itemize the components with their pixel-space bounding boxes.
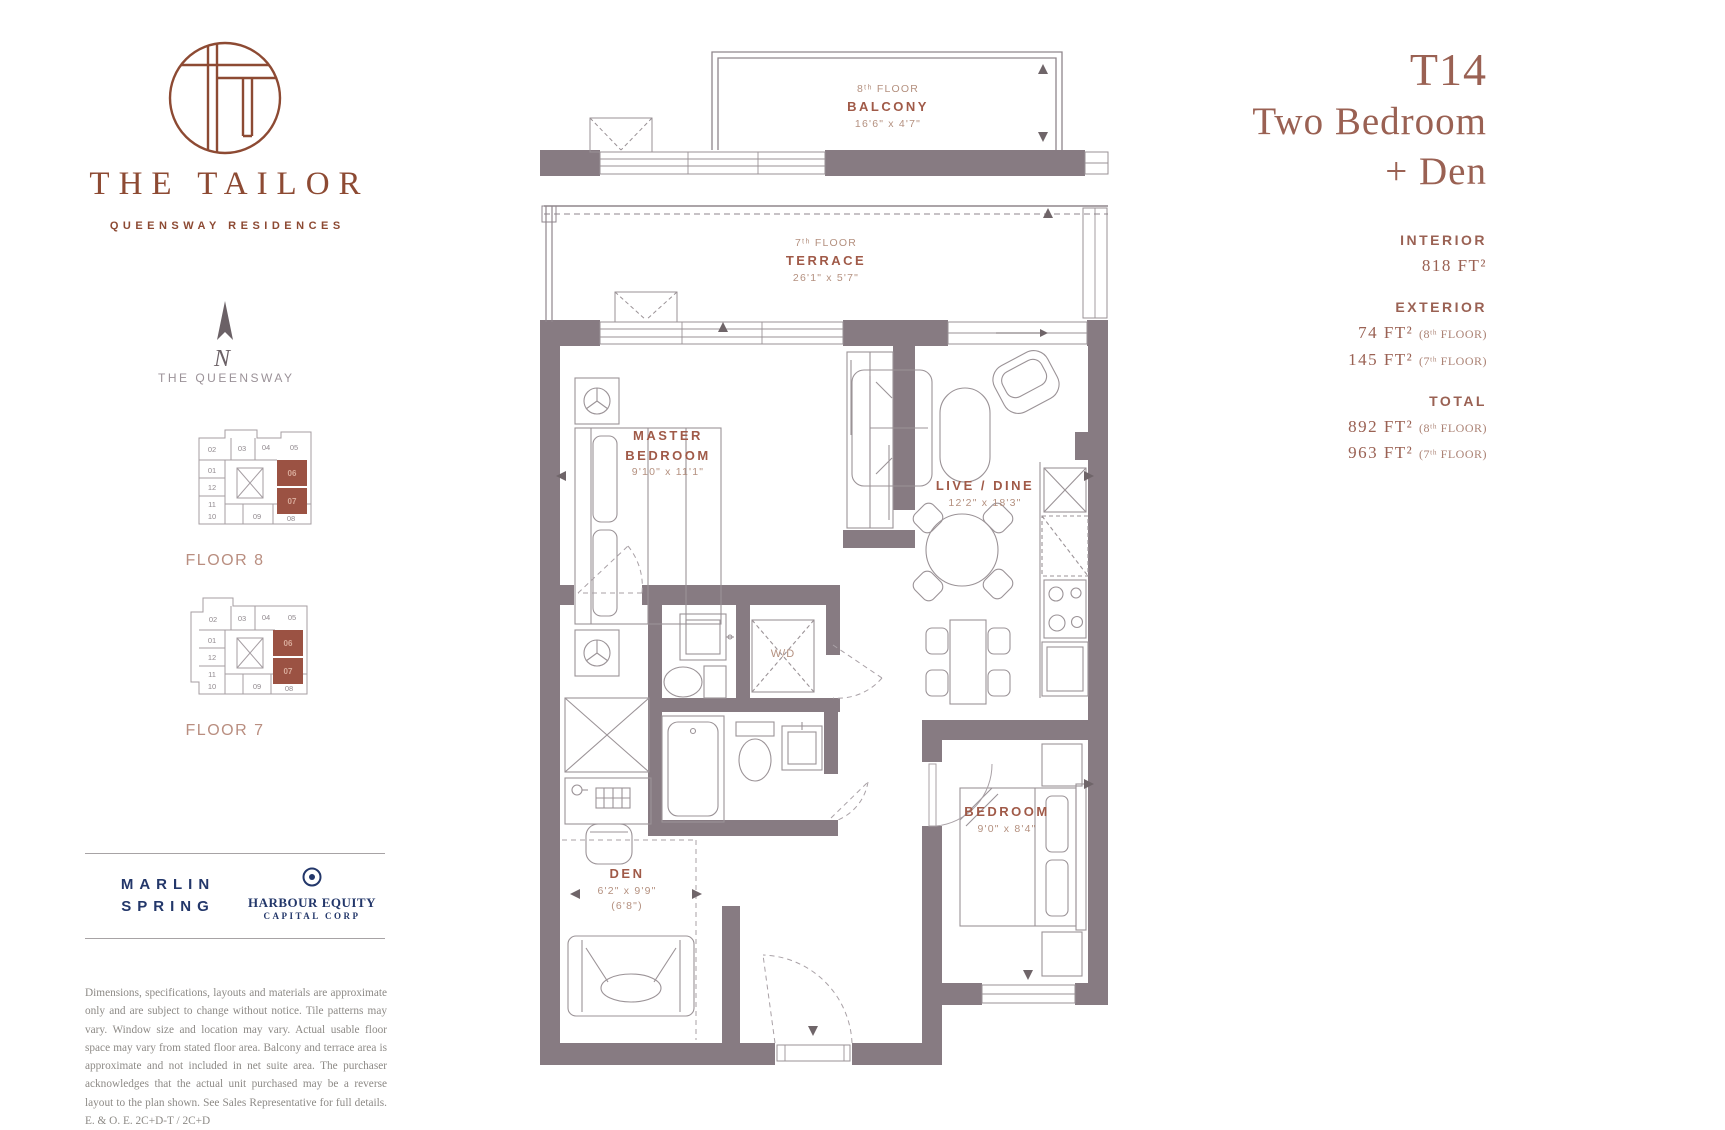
exterior-value-2: 145 FT²	[1348, 350, 1413, 369]
unit-stats: INTERIOR 818 FT² EXTERIOR 74 FT² (8ᵗʰ FL…	[1127, 232, 1487, 467]
total-row-1: 892 FT² (8ᵗʰ FLOOR)	[1127, 414, 1487, 440]
brand-logo	[159, 34, 291, 166]
floor-plan-drawing	[530, 30, 1130, 1100]
brand-tagline: QUEENSWAY RESIDENCES	[70, 220, 380, 232]
total-note-1: (8ᵗʰ FLOOR)	[1419, 421, 1487, 435]
marlin-spring-logo: MARLIN SPRING	[100, 874, 230, 918]
keyplan7-unit: 08	[285, 684, 293, 693]
windows	[600, 152, 1108, 1061]
disclaimer-text: Dimensions, specifications, layouts and …	[85, 984, 387, 1130]
keyplan7-unit07: 07	[284, 667, 293, 676]
tailor-monogram-icon	[159, 34, 291, 166]
keyplan8-unit: 01	[208, 466, 216, 475]
terrace-dims: 26'1" x 5'7"	[786, 271, 866, 286]
live-dine-dims: 12'2" x 18'3"	[936, 496, 1034, 511]
unit-type-line2: + Den	[1127, 147, 1487, 197]
north-arrow-icon	[217, 301, 233, 340]
keyplan8-unit07: 07	[288, 497, 297, 506]
balcony-label: 8ᵗʰ FLOOR BALCONY 16'6" x 4'7"	[847, 82, 929, 132]
keyplan7-unit: 11	[208, 670, 216, 679]
terrace-label: 7ᵗʰ FLOOR TERRACE 26'1" x 5'7"	[786, 236, 866, 286]
live-dine-name: LIVE / DINE	[936, 476, 1034, 496]
den-name: DEN	[597, 864, 656, 884]
master-bedroom-label: MASTER BEDROOM 9'10" x 11'1"	[608, 426, 728, 480]
keyplan7-unit: 10	[208, 682, 216, 691]
bedroom-name: BEDROOM	[964, 802, 1049, 822]
keyplan7-unit: 01	[208, 636, 216, 645]
marlin-line2: SPRING	[100, 896, 230, 918]
marlin-line1: MARLIN	[100, 874, 230, 896]
balcony-dims: 16'6" x 4'7"	[847, 117, 929, 132]
walls	[540, 150, 1108, 1065]
keyplan8-unit: 08	[287, 514, 295, 523]
balcony-floor: 8ᵗʰ FLOOR	[847, 82, 929, 97]
keyplan7-unit: 03	[238, 614, 246, 623]
keyplan-floor8: 06 07 02 03 04 05 01 12 11 10 09 08	[185, 416, 325, 553]
terrace-floor: 7ᵗʰ FLOOR	[786, 236, 866, 251]
keyplan8-unit: 02	[208, 445, 216, 454]
wd-label: W/D	[771, 648, 795, 660]
keyplan8-unit: 10	[208, 512, 216, 521]
exterior-row-1: 74 FT² (8ᵗʰ FLOOR)	[1127, 320, 1487, 346]
unit-code: T14	[1127, 44, 1487, 97]
balcony-name: BALCONY	[847, 97, 929, 117]
keyplan7-unit: 05	[288, 613, 296, 622]
keyplan8-unit: 09	[253, 512, 261, 521]
den-label: DEN 6'2" x 9'9" (6'8")	[597, 864, 656, 914]
keyplan8-unit: 11	[208, 500, 216, 509]
window-mullions	[600, 152, 1108, 1061]
divider-bottom	[85, 938, 385, 939]
total-value-1: 892 FT²	[1348, 417, 1413, 436]
floor8-label: FLOOR 8	[70, 552, 380, 570]
divider-top	[85, 853, 385, 854]
exterior-row-2: 145 FT² (7ᵗʰ FLOOR)	[1127, 347, 1487, 373]
terrace-name: TERRACE	[786, 251, 866, 271]
den-dims2: (6'8")	[597, 899, 656, 914]
bedroom-label: BEDROOM 9'0" x 8'4"	[964, 802, 1049, 837]
exterior-note-1: (8ᵗʰ FLOOR)	[1419, 327, 1487, 341]
keyplan-floor7: 06 07 02 03 04 05 01 12 11 10 09 08	[183, 582, 328, 725]
floor-plan: 8ᵗʰ FLOOR BALCONY 16'6" x 4'7" 7ᵗʰ FLOOR…	[530, 30, 1130, 1100]
interior-label: INTERIOR	[1127, 232, 1487, 248]
bedroom-dims: 9'0" x 8'4"	[964, 822, 1049, 837]
total-value-2: 963 FT²	[1348, 443, 1413, 462]
compass-n: N	[213, 346, 232, 372]
live-dine-label: LIVE / DINE 12'2" x 18'3"	[936, 476, 1034, 511]
keyplan7-unit: 04	[262, 613, 270, 622]
keyplan8-unit: 05	[290, 443, 298, 452]
interior-value: 818 FT²	[1127, 253, 1487, 279]
exterior-value-1: 74 FT²	[1358, 323, 1413, 342]
street-label: THE QUEENSWAY	[70, 371, 380, 385]
floor7-label: FLOOR 7	[70, 722, 380, 740]
harbour-equity-logo: HARBOUR EQUITY CAPITAL CORP	[244, 866, 380, 921]
total-label: TOTAL	[1127, 393, 1487, 409]
keyplan8-unit06: 06	[288, 469, 297, 478]
master-dims: 9'10" x 11'1"	[608, 465, 728, 480]
exterior-label: EXTERIOR	[1127, 299, 1487, 315]
unit-type-line1: Two Bedroom	[1127, 97, 1487, 147]
keyplan7-unit: 02	[209, 615, 217, 624]
harbour-line1: HARBOUR EQUITY	[244, 895, 380, 911]
harbour-line2: CAPITAL CORP	[244, 911, 380, 921]
keyplan7-unit: 12	[208, 653, 216, 662]
keyplan7-unit06: 06	[284, 639, 293, 648]
exterior-note-2: (7ᵗʰ FLOOR)	[1419, 354, 1487, 368]
keyplan8-unit: 12	[208, 483, 216, 492]
north-compass: N	[197, 298, 253, 374]
brand-title: THE TAILOR	[70, 166, 380, 203]
den-dims: 6'2" x 9'9"	[597, 884, 656, 899]
keyplan8-unit: 04	[262, 443, 270, 452]
total-row-2: 963 FT² (7ᵗʰ FLOOR)	[1127, 440, 1487, 466]
master-name-text: MASTER BEDROOM	[625, 428, 710, 463]
harbour-badge-icon	[301, 866, 323, 888]
keyplan7-unit: 09	[253, 682, 261, 691]
planters	[590, 118, 677, 322]
master-name: MASTER BEDROOM	[608, 426, 728, 465]
total-note-2: (7ᵗʰ FLOOR)	[1419, 447, 1487, 461]
unit-header: T14 Two Bedroom + Den	[1127, 44, 1487, 197]
keyplan8-unit: 03	[238, 444, 246, 453]
